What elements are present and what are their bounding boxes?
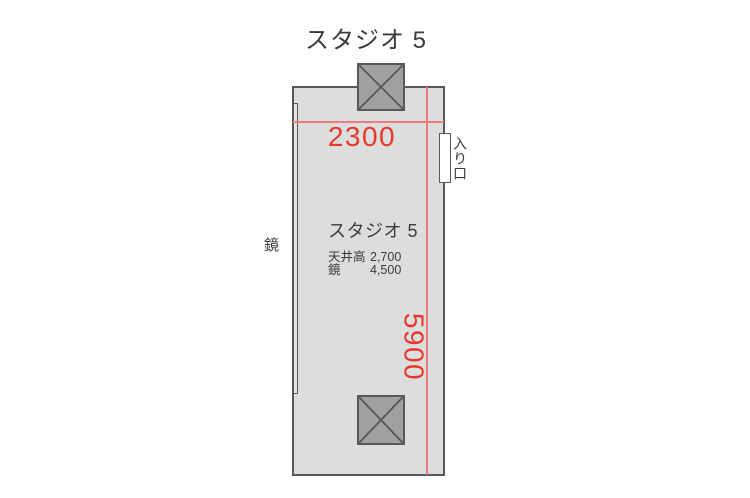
spec-row-mirror: 鏡 4,500: [328, 264, 418, 277]
mirror-label: 鏡: [264, 234, 279, 255]
pillar-top: [357, 63, 405, 111]
pillar-x-icon: [359, 65, 403, 109]
room-name: スタジオ 5: [328, 217, 418, 243]
pillar-bottom: [357, 395, 405, 445]
width-dimension-label: 2300: [292, 123, 432, 151]
pillar-x-icon: [359, 397, 403, 443]
spec-label-mirror: 鏡: [328, 264, 370, 277]
depth-dimension-label: 5900: [400, 300, 428, 395]
room-info-block: スタジオ 5 天井高 2,700 鏡 4,500: [328, 217, 418, 277]
entrance-label: 入り口: [452, 136, 468, 181]
entrance-door: [439, 133, 451, 183]
floorplan-canvas: スタジオ 5 2300 5900 入り口 鏡 スタジオ 5 天井高 2,700 …: [0, 0, 750, 498]
diagram-title: スタジオ 5: [216, 20, 516, 55]
spec-value-mirror: 4,500: [370, 264, 401, 277]
